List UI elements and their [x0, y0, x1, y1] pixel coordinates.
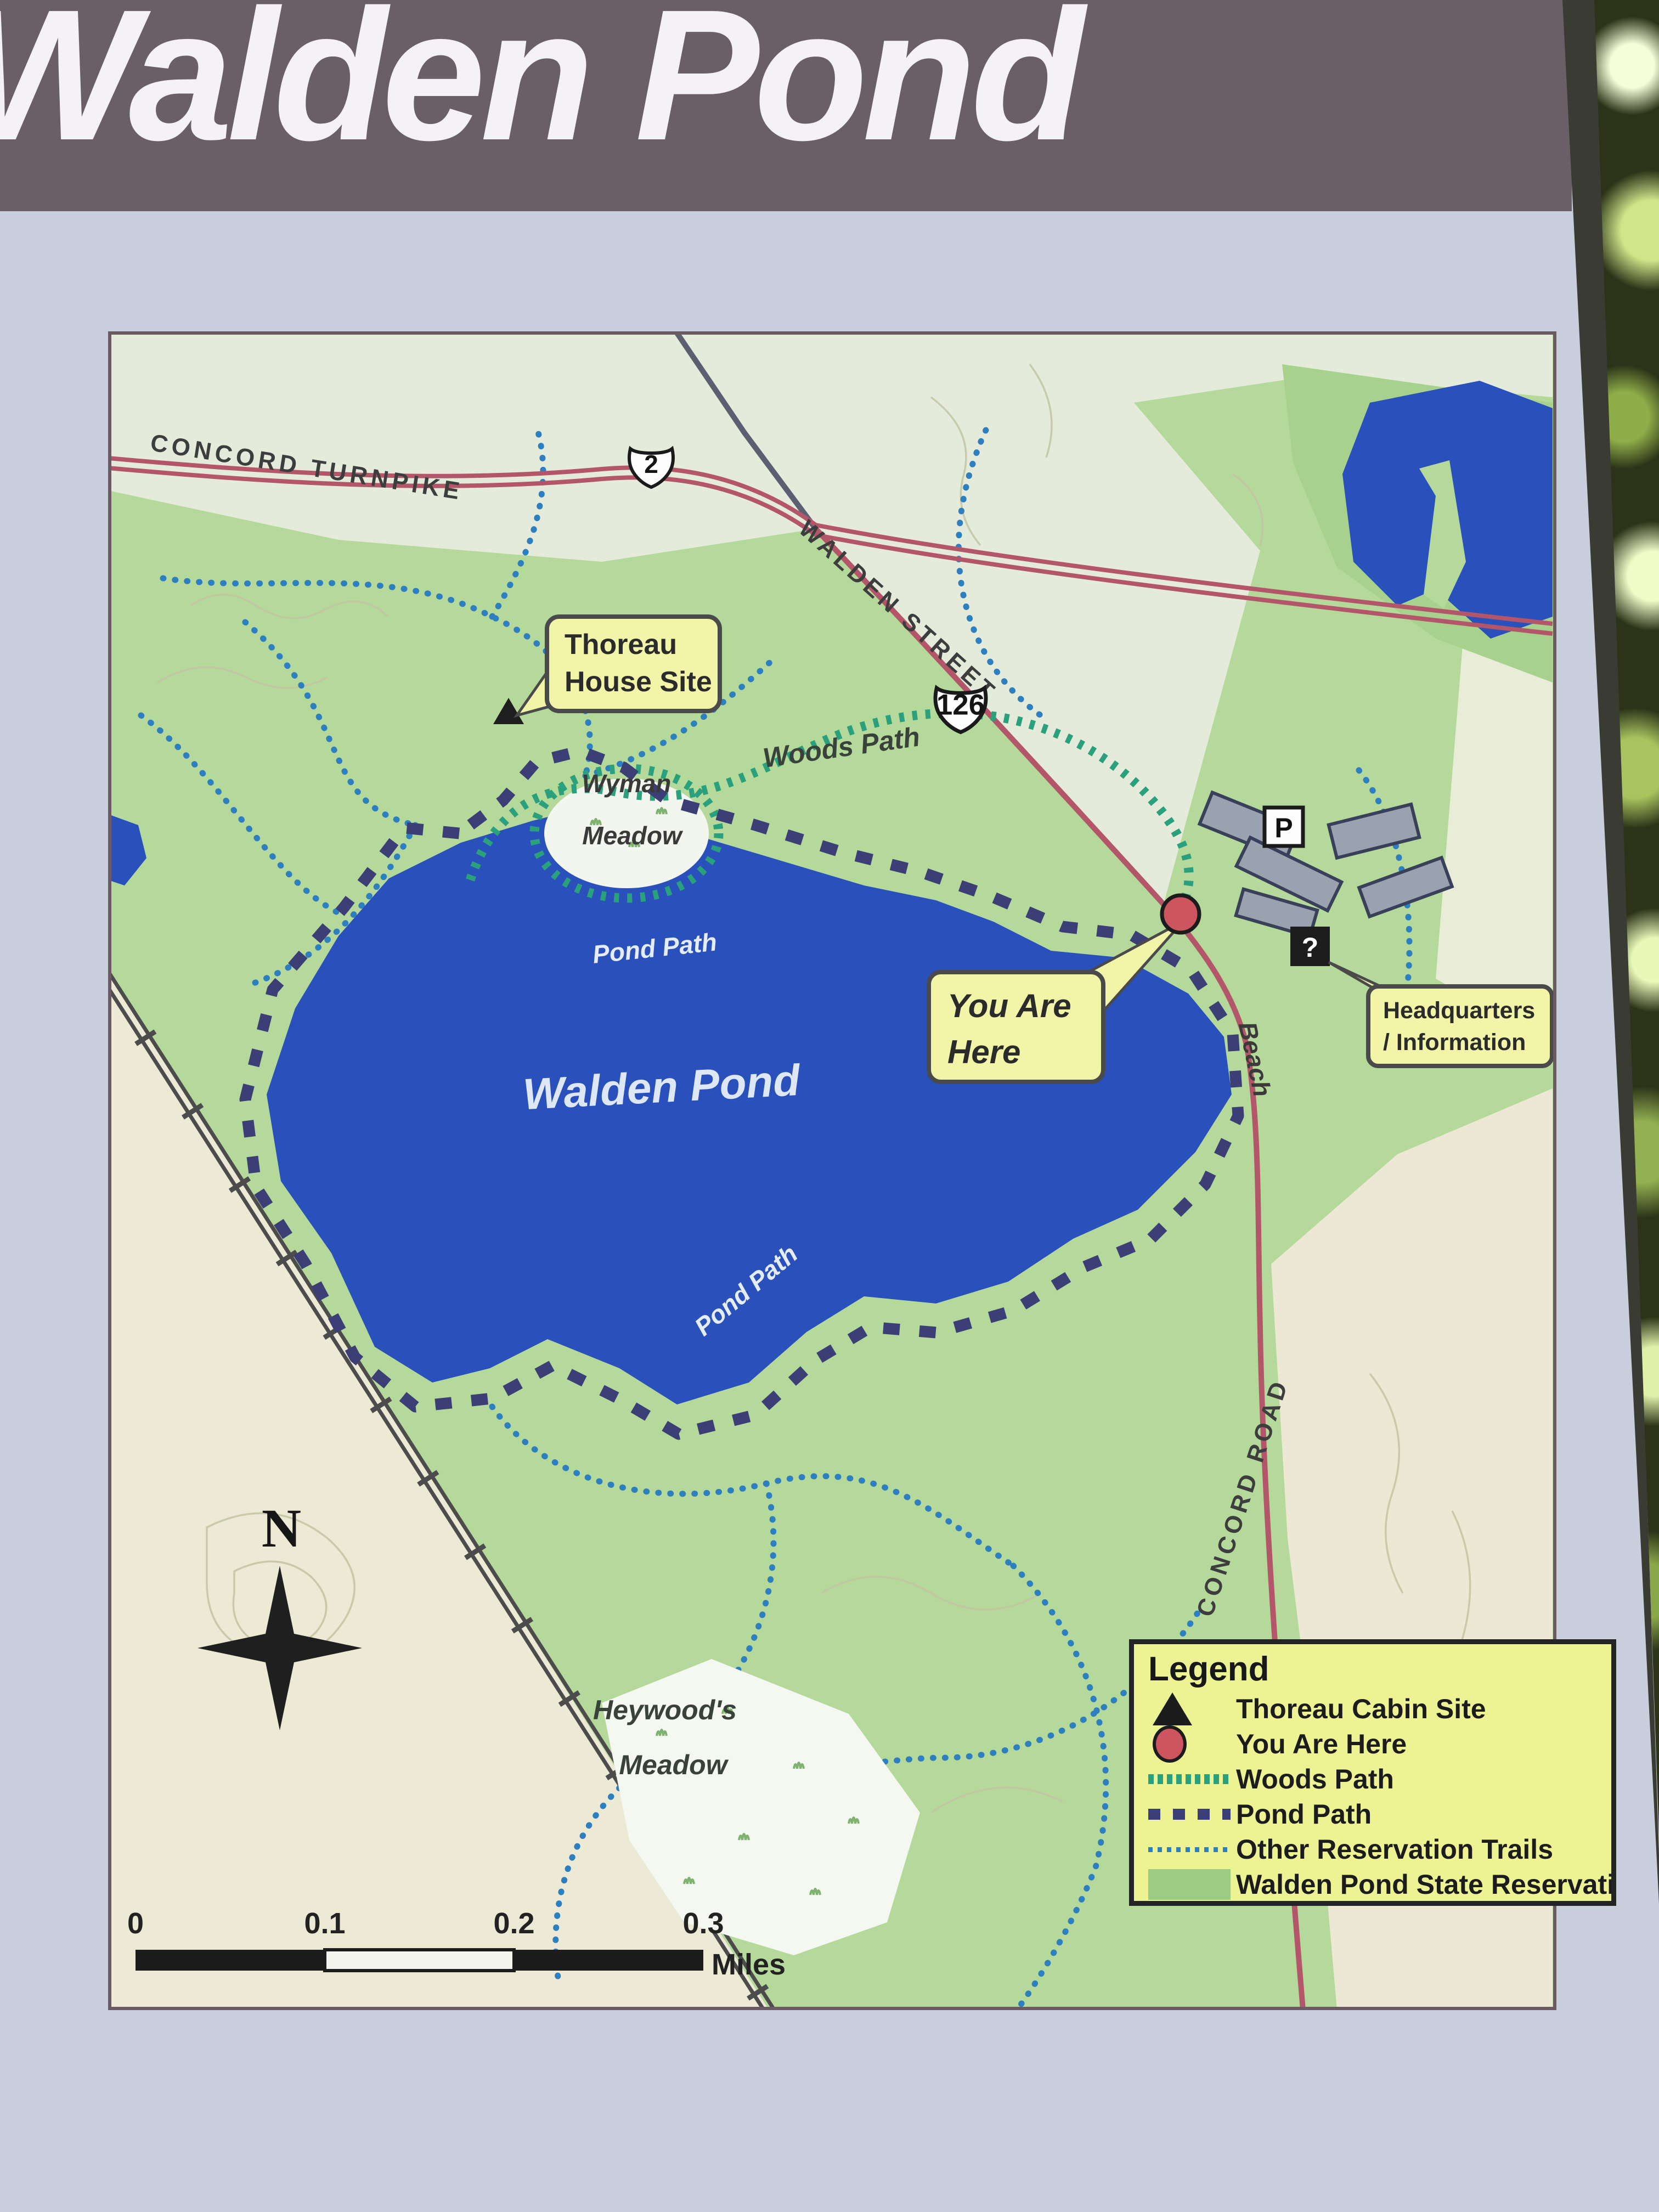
reservation-swatch-icon: [1148, 1869, 1231, 1900]
sign-title: Walden Pond: [0, 0, 1079, 183]
svg-text:Headquarters: Headquarters: [1383, 997, 1535, 1024]
legend-item-other-trails: Other Reservation Trails: [1148, 1832, 1611, 1866]
compass-north-label: N: [262, 1498, 301, 1559]
sign-photo: Walden Pond: [0, 0, 1659, 2212]
scale-tick-01: 0.1: [304, 1907, 345, 1940]
legend-item-woods-path: Woods Path: [1148, 1762, 1611, 1796]
information-icon: ?: [1290, 927, 1330, 966]
legend-title: Legend: [1148, 1650, 1611, 1689]
woods-path-line-icon: [1148, 1774, 1231, 1784]
svg-text:/ Information: / Information: [1383, 1029, 1526, 1056]
svg-text:2: 2: [644, 450, 658, 478]
heywoods-meadow-label-1: Heywood's: [593, 1695, 737, 1725]
scale-tick-0: 0: [127, 1907, 144, 1940]
scale-unit: Miles: [712, 1948, 786, 1981]
svg-text:Thoreau: Thoreau: [565, 629, 677, 661]
svg-text:P: P: [1274, 812, 1293, 843]
svg-text:You Are: You Are: [947, 988, 1071, 1024]
you-are-here-dot-icon: [1153, 1725, 1187, 1763]
wyman-meadow-label-1: Wyman: [582, 769, 672, 798]
scale-tick-03: 0.3: [682, 1907, 724, 1940]
you-are-here-marker: [1162, 895, 1199, 933]
legend-item-reservation: Walden Pond State Reservation: [1148, 1867, 1611, 1901]
scale-tick-02: 0.2: [493, 1907, 534, 1940]
sign-banner: Walden Pond: [0, 0, 1572, 211]
legend-item-pond-path: Pond Path: [1148, 1797, 1611, 1831]
wyman-meadow-label-2: Meadow: [582, 821, 684, 850]
thoreau-house-site-callout: Thoreau House Site: [517, 617, 720, 715]
other-trails-line-icon: [1148, 1847, 1231, 1852]
legend-item-you-are-here: You Are Here: [1148, 1727, 1611, 1761]
svg-text:Here: Here: [947, 1034, 1020, 1070]
heywoods-meadow-label-2: Meadow: [619, 1750, 729, 1780]
pond-path-line-icon: [1148, 1809, 1231, 1820]
legend: Legend Thoreau Cabin Site You Are Here W…: [1129, 1639, 1616, 1906]
svg-text:House Site: House Site: [565, 666, 712, 698]
svg-text:?: ?: [1302, 932, 1319, 963]
legend-item-cabin: Thoreau Cabin Site: [1148, 1692, 1611, 1726]
svg-text:126: 126: [936, 689, 985, 721]
cabin-triangle-icon: [1153, 1692, 1192, 1725]
parking-icon: P: [1265, 808, 1303, 846]
